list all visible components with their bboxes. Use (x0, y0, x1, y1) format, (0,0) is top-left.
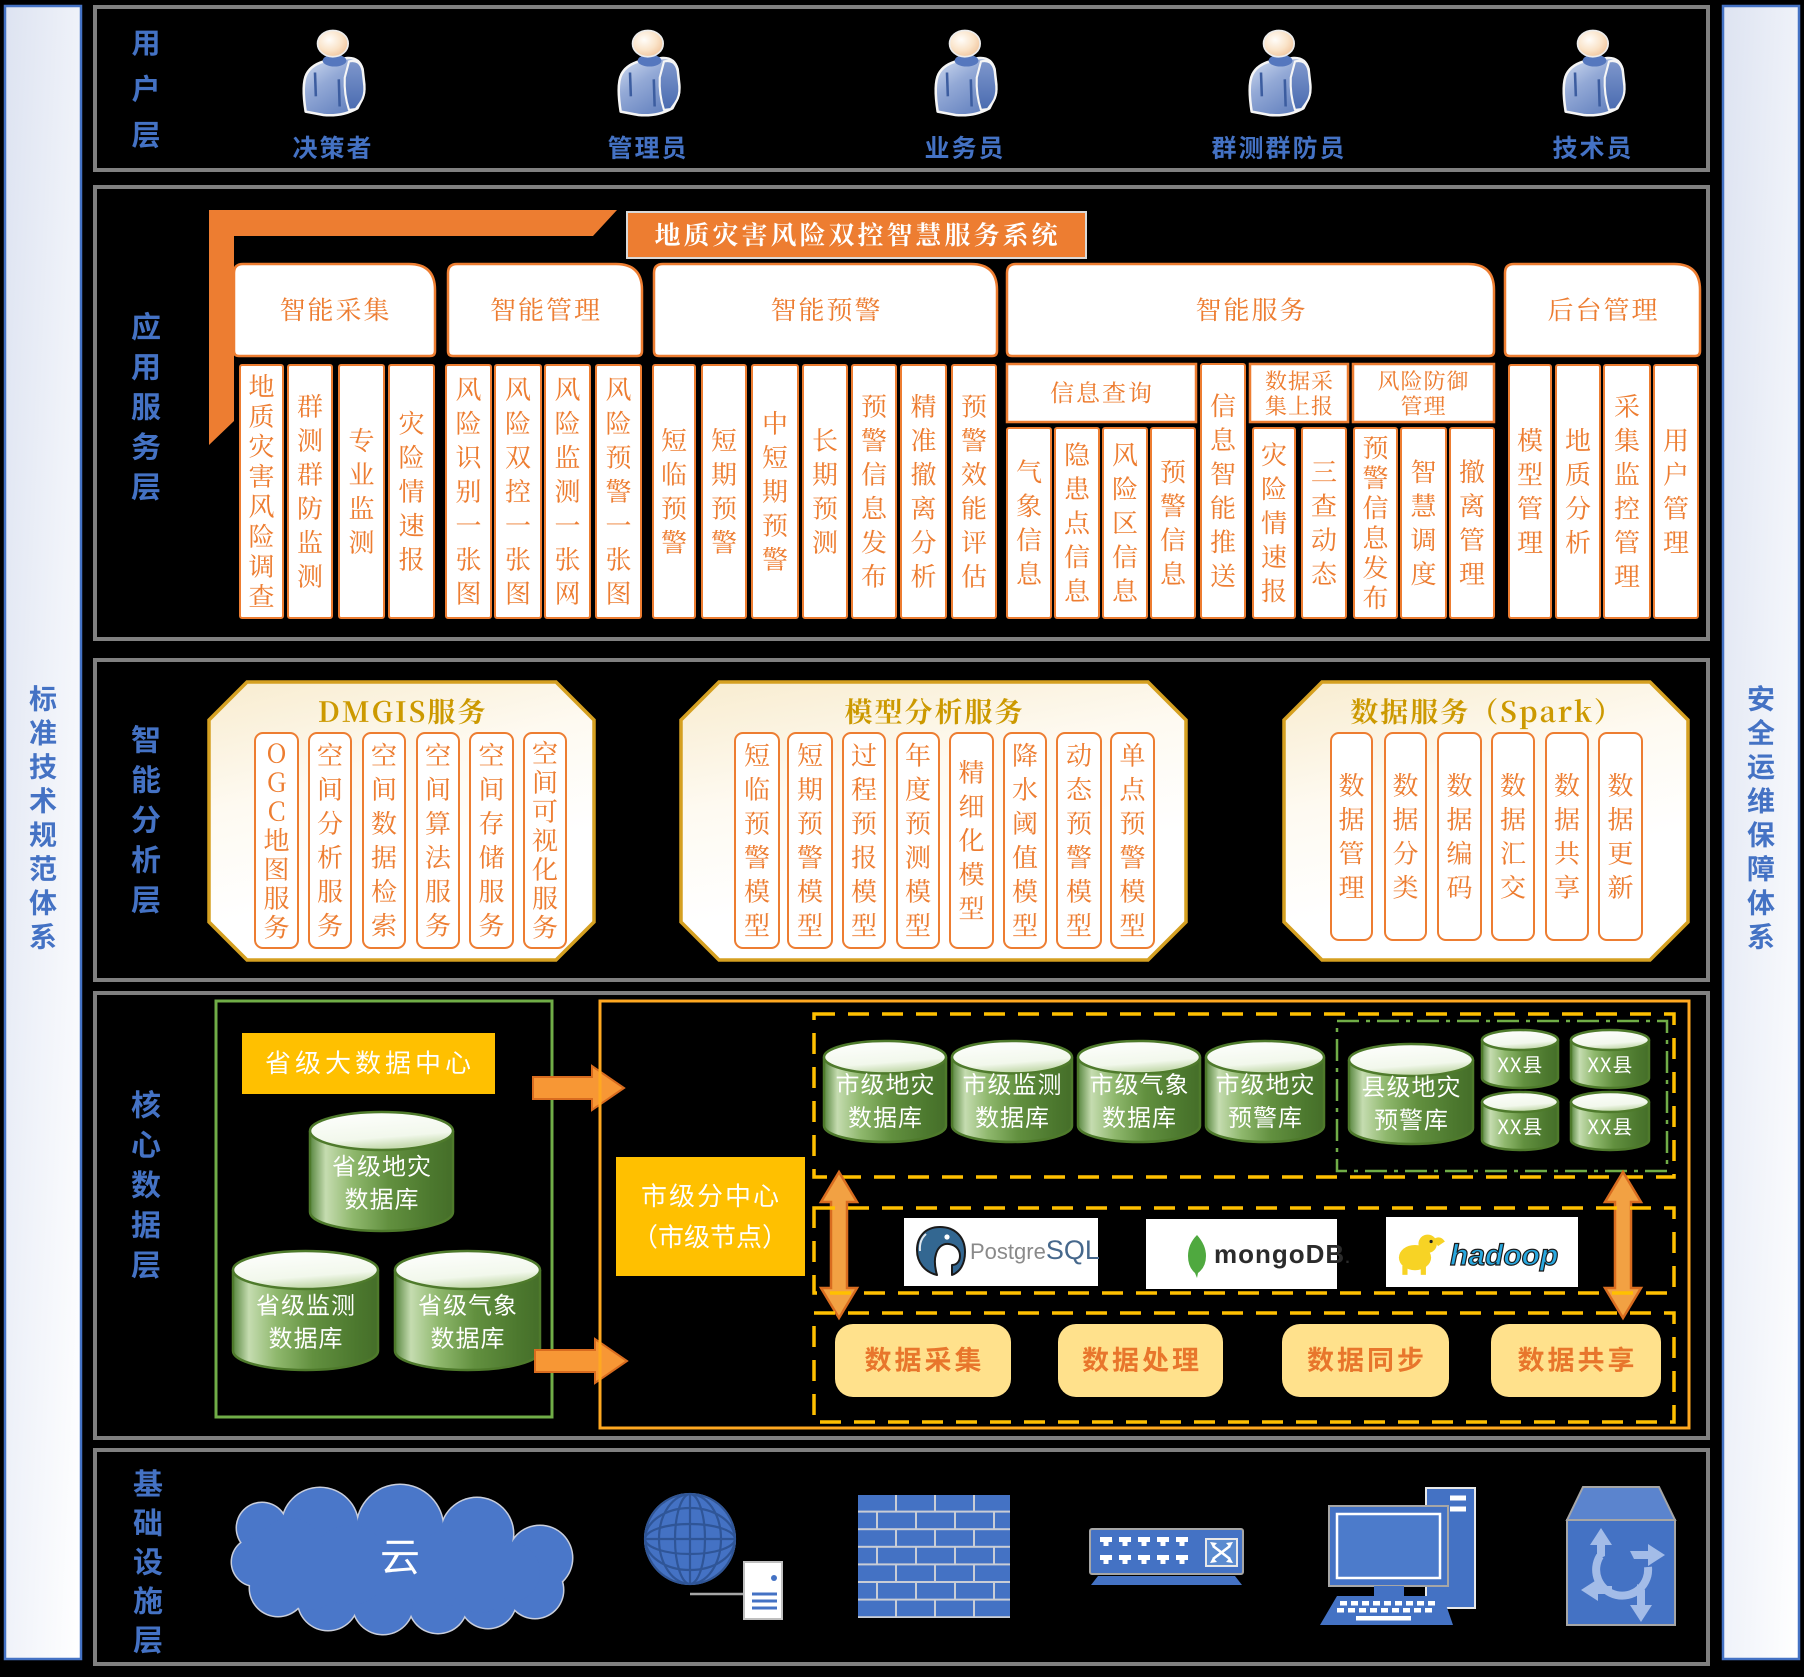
svg-text:hadoop: hadoop (1450, 1239, 1558, 1272)
svg-text:mongoDB.: mongoDB. (1214, 1239, 1351, 1269)
svg-text:PostgreSQL: PostgreSQL (970, 1235, 1100, 1265)
